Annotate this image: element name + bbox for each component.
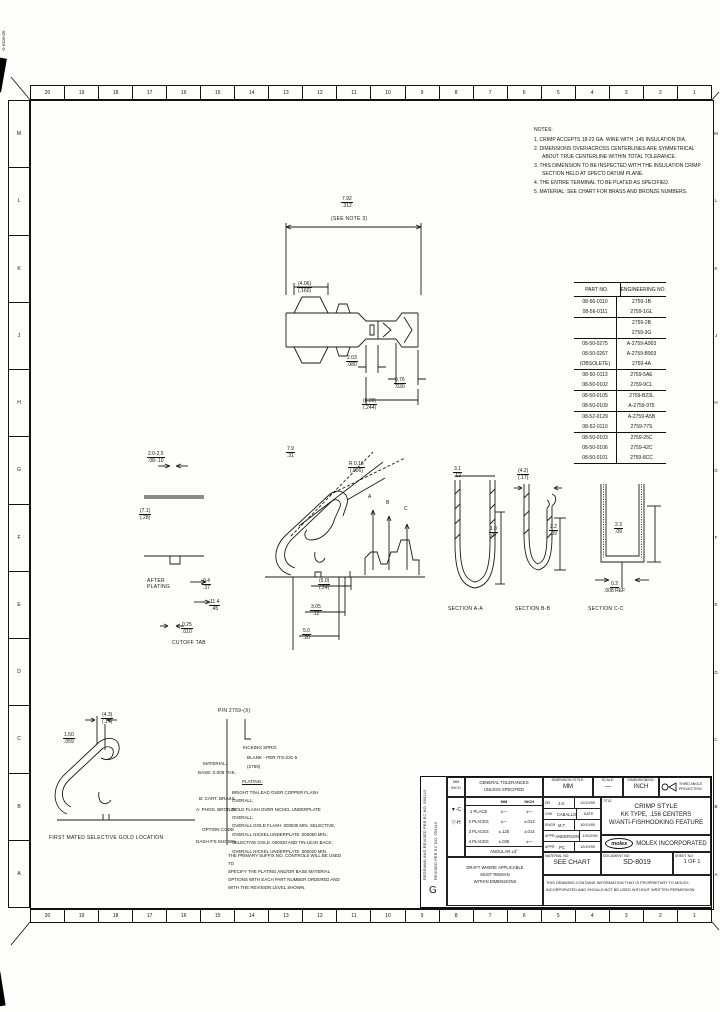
- note-item: 4. THE ENTIRE TERMINAL TO BE PLATED AS S…: [534, 179, 710, 187]
- zone-number: 3: [610, 86, 644, 99]
- zone-letter: K: [9, 236, 29, 303]
- after-plating-label: AFTER PLATING: [147, 578, 170, 590]
- draft-note-3: WITHIN DIMENSIONS: [448, 878, 542, 885]
- part-no-cell: 08-56-0110: [574, 299, 616, 305]
- kicking-spring-heading: KICKING SPRG:: [243, 745, 277, 751]
- approval-date: 10/10/95: [574, 820, 600, 830]
- zone-number: 6: [508, 909, 542, 922]
- engineering-no-cell: 2759-2B: [616, 318, 666, 328]
- dimension-style-value: MM: [544, 784, 592, 790]
- document-no-value: SD-8019: [602, 859, 672, 866]
- part-no-cell: 08-50-0267: [574, 351, 616, 357]
- proprietary-line-1: THIS DRAWING CONTAINS INFORMATION THAT I…: [546, 879, 708, 886]
- note-item: 3. THIS DIMENSION TO BE INSPECTED WITH T…: [534, 162, 710, 178]
- material-base: BASE: 0.008 THK.: [198, 770, 236, 776]
- approval-row: APPR ANDERSON 10/10/95: [544, 831, 600, 842]
- tol-row-label: 3 PLACES: [466, 829, 491, 834]
- revision-strip: REDRAWN AND REVISED PER EC NO. 960143 RE…: [421, 777, 447, 906]
- molex-logo: molex: [605, 838, 633, 849]
- section-aa-caption: SECTION A-A: [448, 606, 483, 612]
- engineering-no-cell: 2759-1GL: [616, 307, 666, 317]
- section-cut-label-a: A: [368, 494, 372, 500]
- zone-letter: A: [9, 841, 29, 907]
- third-angle-projection-icon: [661, 782, 677, 792]
- zone-letter: C: [9, 706, 29, 773]
- dim-secc-base: 0.2.008 REF: [604, 581, 625, 595]
- part-no-cell: 08-50-0101: [574, 455, 616, 461]
- parts-table-row: 08-50-0267 A-2759-B903: [574, 349, 666, 359]
- parts-table-row: 08-52-0129 A-2759-A5B: [574, 412, 666, 422]
- drawing-title-1: CRIMP STYLE: [602, 803, 710, 810]
- engineering-no-cell: 2759-5AE: [616, 370, 666, 380]
- zone-number: 10: [371, 909, 405, 922]
- tolerance-table: MM INCH 1 PLACE ±— ±— 2 PLACES ±— ±.013: [465, 797, 543, 857]
- zone-number: 9: [406, 909, 440, 922]
- note-item: 2. DIMENSIONS OVER/ACROSS CENTERLINES AR…: [534, 145, 710, 161]
- zone-number: 20: [31, 909, 65, 922]
- dim-side-radius: R 0.15(.006): [348, 461, 365, 475]
- zone-letter: H: [9, 370, 29, 437]
- part-no-cell: 08-50-0102: [574, 382, 616, 388]
- zone-ruler-bottom: 2019181716151413121110987654321: [30, 908, 712, 923]
- section-cc-drawing: [585, 476, 670, 604]
- zone-number: 7: [474, 909, 508, 922]
- option-code-label: OPTION CODE: [202, 827, 234, 833]
- parts-table-row: 08-50-0103 2759-25C: [574, 433, 666, 443]
- dimensioning-label: DIMENSIONING:: [624, 778, 658, 782]
- part-no-cell: 08-56-0111: [574, 309, 616, 315]
- engineering-no-cell: 2759-1B: [616, 297, 666, 307]
- part-no-cell: (OBSOLETE): [574, 361, 616, 367]
- part-no-cell: 08-50-0106: [574, 445, 616, 451]
- engineering-no-cell: A-2759-A5B: [616, 412, 666, 422]
- draft-note-cell: DRAFT WHERE APPLICABLE MUST REMAIN WITHI…: [447, 857, 543, 906]
- projection-label: THIRD ANGLE PROJECTION: [679, 782, 709, 791]
- tol-row-label: 2 PLACES: [466, 819, 491, 824]
- tol-col-mm: MM: [491, 799, 516, 804]
- tol-angular: ANGULAR ±3°: [466, 846, 542, 854]
- zone-number: 12: [303, 86, 337, 99]
- units-cell: MM INCH: [447, 777, 465, 797]
- company-cell: molex MOLEX INCORPORATED: [601, 835, 711, 852]
- dim-secb-width: (4.2)(.17): [517, 468, 529, 482]
- scale-value: —: [594, 784, 622, 790]
- sheet-no-value: 1 OF 1: [674, 859, 710, 865]
- zone-number: 15: [201, 86, 235, 99]
- part-no-cell: 08-50-0109: [574, 403, 616, 409]
- zone-number: 14: [235, 86, 269, 99]
- drawing-title-2: KK TYPE, .156 CENTERS: [602, 812, 710, 818]
- approvals-table: DR J.S. 10/10/95 CHK CABALLO DATE ENGR M…: [543, 797, 601, 852]
- proprietary-note-cell: THIS DRAWING CONTAINS INFORMATION THAT I…: [543, 875, 711, 906]
- parts-table-row: 08-56-0111 2759-1GL: [574, 307, 666, 318]
- zone-number: 5: [542, 86, 576, 99]
- tolerance-row: 1 PLACE ±— ±—: [466, 806, 542, 816]
- projection-cell: THIRD ANGLE PROJECTION: [659, 777, 711, 797]
- engineering-no-cell: 2759-B23L: [616, 391, 666, 401]
- units-inch: INCH: [448, 786, 464, 792]
- parts-table-header: PART NO. ENGINEERING NO.: [574, 283, 666, 297]
- parts-table-row: 2759-3G: [574, 328, 666, 339]
- notes-heading: NOTES:: [534, 126, 710, 134]
- tol-col-inch: INCH: [517, 799, 542, 804]
- parts-table-row: 08-56-0110 2759-1B: [574, 297, 666, 307]
- section-cut-label-c: C: [404, 506, 408, 512]
- section-bb-drawing: [512, 476, 587, 604]
- parts-table-row: 08-50-0275 A-2759-A903: [574, 339, 666, 349]
- dim-detail-d2: (7.1)(.28): [139, 508, 151, 522]
- plating-spec-line: SELECTIVE GOLD .000030 AND TIN-LEAD BACK…: [232, 839, 338, 847]
- parts-table-row: (OBSOLETE) 2759-4A: [574, 359, 666, 370]
- engineering-no-cell: 2759-42C: [616, 443, 666, 453]
- dim-plan-mid: 2.03.080: [346, 355, 358, 369]
- approval-name: .PC: [558, 845, 574, 850]
- suffix-note: THE PRIMARY SUFFIX NO. CONTROLS WILL BE …: [228, 852, 346, 892]
- dim-side-d2: 3.05.12: [310, 604, 322, 618]
- plating-heading: PLATING:: [242, 779, 263, 785]
- dim-secb-height: 2.2.09: [549, 524, 558, 538]
- material-no-value: SEE CHART: [544, 859, 600, 866]
- dim-mating-d2: 1.50.059: [63, 732, 75, 746]
- engineering-no-cell: 2759-25C: [616, 433, 666, 443]
- zone-number: 11: [337, 909, 371, 922]
- dim-secc-height: 2.3.09: [614, 522, 623, 536]
- note-item: 1. CRIMP ACCEPTS 18-22 GA. WIRE WITH .14…: [534, 136, 710, 144]
- dim-detail-d1: 2.0-2.5.08-.10: [147, 451, 165, 465]
- approval-role: DR: [544, 801, 558, 805]
- part-no-cell: 08-52-0129: [574, 414, 616, 420]
- tolerance-row: 3 PLACES ±.125 ±.014: [466, 826, 542, 836]
- parts-table-row: 2759-2B: [574, 318, 666, 328]
- col-part-no: PART NO.: [574, 287, 620, 293]
- approval-row: DR J.S. 10/10/95: [544, 798, 600, 809]
- dim-plan-bottom: (6.20)(.244): [362, 398, 377, 412]
- company-name: MOLEX INCORPORATED: [636, 841, 707, 847]
- zone-number: 18: [99, 86, 133, 99]
- dim-side-diag: 7.9.31: [286, 446, 295, 460]
- approval-role: APPR: [544, 845, 558, 849]
- zone-number: 4: [576, 86, 610, 99]
- finish-marks-cell: ▼-C ▽-H: [447, 797, 465, 857]
- tolerance-row: 2 PLACES ±— ±.013: [466, 816, 542, 826]
- zone-number: 10: [371, 86, 405, 99]
- approval-role: APPR: [544, 834, 555, 838]
- parts-table-row: 08-50-0101 2759-8CC: [574, 453, 666, 464]
- tol-row-label: 4 PLACES: [466, 839, 491, 844]
- draft-note-2: MUST REMAIN: [448, 871, 542, 878]
- dimension-style-cell: DIMENSION STYLE: MM: [543, 777, 593, 797]
- tolerance-row: 4 PLACES ±.038 ±—: [466, 836, 542, 846]
- zone-number: 13: [269, 86, 303, 99]
- approval-role: ENGR: [544, 823, 558, 827]
- section-cut-label-b: B: [386, 500, 390, 506]
- plan-note-ref: (SEE NOTE 3): [331, 216, 367, 222]
- suffix-note-line: THE PRIMARY SUFFIX NO. CONTROLS WILL BE …: [228, 852, 346, 868]
- zone-number: 8: [440, 909, 474, 922]
- zone-ruler-top: 2019181716151413121110987654321: [30, 85, 712, 100]
- part-no-cell: 08-50-0103: [574, 435, 616, 441]
- approval-row: CHK CABALLO DATE: [544, 809, 600, 820]
- title-block: REDRAWN AND REVISED PER EC NO. 960143 RE…: [420, 776, 712, 908]
- material-option-b: B: CART. BRASS: [199, 796, 235, 802]
- tol-row-mm: ±.125: [491, 829, 516, 834]
- approval-name: CABALLO: [557, 812, 576, 817]
- tol-row-inch: ±.013: [517, 819, 542, 824]
- parts-table-row: 08-50-0102 2759-9CL: [574, 380, 666, 391]
- zone-number: 4: [576, 909, 610, 922]
- section-cc-caption: SECTION C-C: [588, 606, 624, 612]
- zone-number: 8: [440, 86, 474, 99]
- proprietary-line-2: INCORPORATED AND SHOULD NOT BE USED WITH…: [546, 886, 708, 893]
- zone-letter: F: [9, 505, 29, 572]
- engineering-no-cell: A-2759-975: [616, 401, 666, 411]
- zone-number: 16: [167, 86, 201, 99]
- dim-detail-d4: 11.4.45: [209, 599, 220, 613]
- engineering-no-cell: 2759-9CL: [616, 380, 666, 390]
- col-engineering-no: ENGINEERING NO.: [620, 283, 667, 296]
- dim-mating-d1: (4.3)(.17): [101, 712, 113, 726]
- tol-heading-1: GENERAL TOLERANCES: [466, 780, 542, 787]
- dim-side-d1: (6.0)(.24): [318, 578, 330, 592]
- material-no-cell: MATERIAL NO: SEE CHART: [543, 852, 601, 875]
- tol-row-label: 1 PLACE: [466, 809, 491, 814]
- draft-note-1: DRAFT WHERE APPLICABLE: [448, 864, 542, 871]
- zone-number: 17: [133, 86, 167, 99]
- drawing-title-3: W/ANTI-FISHHOOKING FEATURE: [602, 820, 710, 826]
- suffix-note-line: SPECIFY THE PLATING AND/OR BASE MATERIAL: [228, 868, 346, 876]
- approval-date: DATE: [576, 809, 600, 819]
- pn-breakdown-label: P/N 2759-(X): [218, 708, 251, 714]
- zone-number: 2: [644, 86, 678, 99]
- engineering-no-cell: 2759-4A: [616, 359, 666, 369]
- zone-number: 13: [269, 909, 303, 922]
- approval-name: J.S.: [558, 801, 574, 806]
- part-no-cell: 08-52-0110: [574, 424, 616, 430]
- parts-table-row: 08-50-0105 2759-B23L: [574, 391, 666, 401]
- zone-number: 15: [201, 909, 235, 922]
- tol-row-inch: ±—: [517, 809, 542, 814]
- zone-number: 3: [610, 909, 644, 922]
- approval-name: ANDERSON: [555, 834, 579, 839]
- dim-seca-width: 3.1.12: [453, 466, 462, 480]
- revision-letter: G: [429, 885, 437, 896]
- finish-mark-1: ▼-C: [448, 804, 464, 817]
- plan-view-drawing: [280, 195, 430, 425]
- kicking-spring-blank: BLANK - PER ITS-231-5: [247, 755, 297, 761]
- tol-row-inch: ±—: [517, 839, 542, 844]
- document-no-cell: DOCUMENT NO: SD-8019: [601, 852, 673, 875]
- zone-number: 19: [65, 909, 99, 922]
- tol-row-mm: ±—: [491, 819, 516, 824]
- sheet-no-cell: SHEET NO: 1 OF 1: [673, 852, 711, 875]
- tol-heading-2: UNLESS SPECIFIED: [466, 787, 542, 794]
- parts-table-row: 08-52-0110 2759-77S: [574, 422, 666, 433]
- approval-date: 10/10/95: [574, 798, 600, 808]
- zone-number: 17: [133, 909, 167, 922]
- dim-detail-d5: 0.25.010: [181, 622, 193, 636]
- cutoff-tab-caption: CUTOFF TAB: [172, 640, 206, 646]
- parts-table-row: 08-50-0109 A-2759-975: [574, 401, 666, 412]
- dim-plan-overall: 7.92.312: [341, 196, 353, 210]
- approval-name: M.T.: [558, 823, 574, 828]
- approval-date: 10/10/95: [579, 831, 600, 841]
- plating-spec-list: BRIGHT TIN-LEAD OVER COPPER FLASH OVERAL…: [232, 789, 338, 856]
- zone-number: 7: [474, 86, 508, 99]
- zone-number: 12: [303, 909, 337, 922]
- material-option-a: A: PHOS. BRONZE: [196, 807, 236, 813]
- zone-number: 6: [508, 86, 542, 99]
- mated-position-caption: FIRST MATED SELECTIVE GOLD LOCATION: [49, 835, 163, 841]
- engineering-no-cell: A-2759-A903: [616, 339, 666, 349]
- dimension-style-label: DIMENSION STYLE:: [544, 778, 592, 782]
- material-heading: MATERIAL:: [203, 761, 227, 767]
- scale-label: SCALE:: [594, 778, 622, 782]
- zone-number: 14: [235, 909, 269, 922]
- general-tolerances-heading: GENERAL TOLERANCES UNLESS SPECIFIED: [465, 777, 543, 797]
- revision-text-2: REVISED PER EC NO. 953310: [434, 780, 438, 880]
- engineering-no-cell: 2759-77S: [616, 422, 666, 432]
- part-no-cell: 08-50-0105: [574, 393, 616, 399]
- parts-table-row: 08-50-0113 2759-5AE: [574, 370, 666, 380]
- dimensioning-cell: DIMENSIONING: INCH: [623, 777, 659, 797]
- zone-number: 16: [167, 909, 201, 922]
- zone-letter: G: [9, 437, 29, 504]
- approval-row: ENGR M.T. 10/10/95: [544, 820, 600, 831]
- dash-numbers-label: DASH #'S SHOWN: [196, 839, 235, 845]
- tol-row-mm: ±.038: [491, 839, 516, 844]
- plating-spec-line: BRIGHT TIN-LEAD OVER COPPER FLASH OVERAL…: [232, 789, 338, 806]
- zone-number: 2: [644, 909, 678, 922]
- scale-cell: SCALE: —: [593, 777, 623, 797]
- zone-letter: J: [9, 303, 29, 370]
- zone-letter: D: [9, 639, 29, 706]
- plating-spec-line: OVERALL NICKEL UNDERPLATE .000050 MIN.;: [232, 831, 338, 839]
- dim-detail-d3: 9.4.37: [202, 578, 211, 592]
- zone-letter: E: [9, 572, 29, 639]
- detail-view-drawing: [140, 450, 265, 660]
- section-bb-caption: SECTION B-B: [515, 606, 550, 612]
- zone-number: 18: [99, 909, 133, 922]
- title-cell: TITLE CRIMP STYLE KK TYPE, .156 CENTERS …: [601, 797, 711, 835]
- plating-spec-line: OVERALL GOLD FLASH .000030 MIN. SELECTIV…: [232, 822, 338, 830]
- tol-row-inch: ±.014: [517, 829, 542, 834]
- drawing-sheet: SD-8019-G K-845 (7/92) 20191817161514131…: [0, 0, 720, 1012]
- dim-plan-right: 0.76.030: [394, 377, 406, 391]
- plating-spec-line: GOLD FLASH OVER NICKEL UNDERPLATE OVERAL…: [232, 806, 338, 823]
- engineering-no-cell: A-2759-B903: [616, 349, 666, 359]
- dim-plan-left: (4.06)(.160): [297, 281, 312, 295]
- zone-letter: M: [9, 101, 29, 168]
- engineering-no-cell: 2759-3G: [616, 328, 666, 338]
- approval-role: CHK: [544, 812, 557, 816]
- note-item: 5. MATERIAL: SEE CHART FOR BRASS AND BRO…: [534, 188, 710, 196]
- tol-row-mm: ±—: [491, 809, 516, 814]
- notes-block: NOTES: 1. CRIMP ACCEPTS 18-22 GA. WIRE W…: [534, 126, 710, 197]
- zone-letter: B: [9, 774, 29, 841]
- zone-number: 1: [678, 909, 711, 922]
- dimensioning-value: INCH: [624, 784, 658, 790]
- zone-number: 1: [678, 86, 711, 99]
- zone-ruler-left: MLKJHGFEDCBA: [8, 100, 30, 908]
- zone-number: 11: [337, 86, 371, 99]
- part-no-cell: 08-50-0275: [574, 341, 616, 347]
- dim-side-d3: 5.0.20: [302, 628, 311, 642]
- zone-number: 5: [542, 909, 576, 922]
- approval-date: 10/10/95: [574, 842, 600, 852]
- finish-mark-2: ▽-H: [448, 817, 464, 830]
- parts-table-row: 08-50-0106 2759-42C: [574, 443, 666, 453]
- zone-number: 19: [65, 86, 99, 99]
- zone-number: 20: [31, 86, 65, 99]
- engineering-no-cell: 2759-8CC: [616, 453, 666, 463]
- revision-text-1: REDRAWN AND REVISED PER EC NO. 960143: [423, 780, 427, 880]
- suffix-note-line: OPTIONS WITH EACH PART NUMBER ORDERED AN…: [228, 876, 346, 884]
- part-no-cell: 08-50-0113: [574, 372, 616, 378]
- dim-seca-height: 1.8.07: [489, 526, 498, 540]
- kicking-spring-ref: (2759): [247, 764, 260, 770]
- zone-letter: L: [9, 168, 29, 235]
- zone-number: 9: [406, 86, 440, 99]
- title-label: TITLE: [603, 799, 612, 803]
- parts-table: PART NO. ENGINEERING NO. 08-56-0110 2759…: [574, 282, 666, 464]
- suffix-note-line: WITH THE REVISION LEVEL SHOWN.: [228, 884, 346, 892]
